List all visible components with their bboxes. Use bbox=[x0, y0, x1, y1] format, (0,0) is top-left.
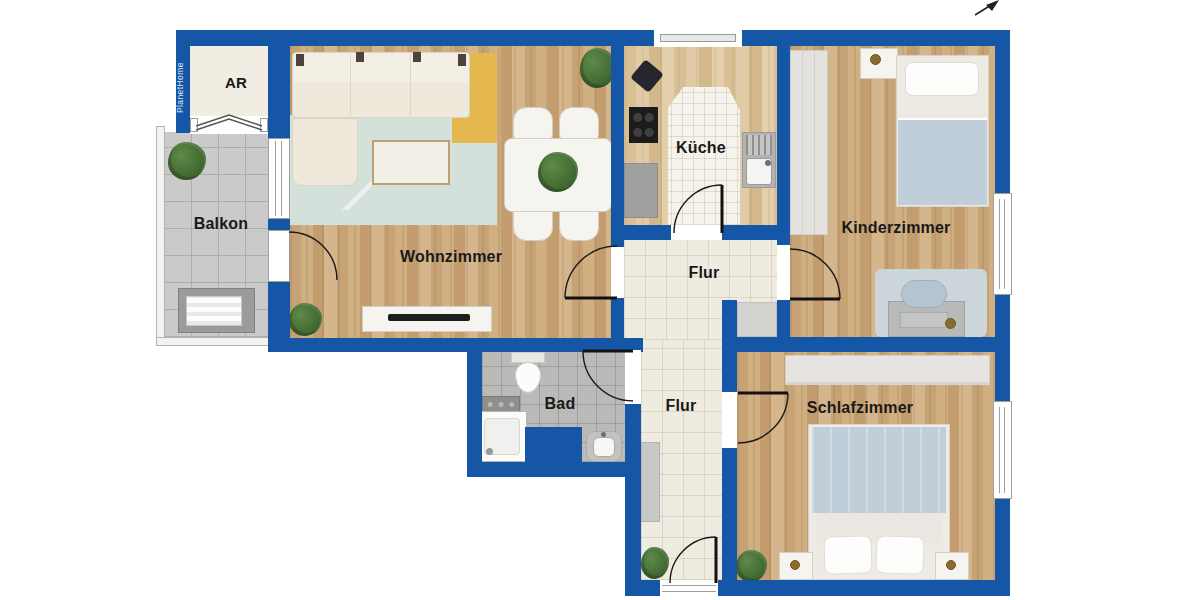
kids-bed-pillow bbox=[905, 62, 979, 96]
kitchen-door-opening bbox=[671, 225, 722, 240]
bath-faucet bbox=[601, 432, 606, 437]
room-label-wohnzimmer: Wohnzimmer bbox=[400, 248, 502, 266]
bed-pillow-left bbox=[823, 535, 872, 575]
living-hall-door-opening bbox=[611, 247, 624, 298]
kids-bed-blanket bbox=[898, 118, 987, 205]
sofa-chaise bbox=[292, 118, 358, 186]
room-label-balkon: Balkon bbox=[194, 215, 249, 233]
watermark-brand: PlanetHome bbox=[175, 50, 190, 126]
kids-desk-chair bbox=[901, 280, 947, 308]
wall-bath-jog bbox=[525, 427, 582, 463]
kids-desk-lamp bbox=[945, 318, 956, 329]
tv bbox=[388, 314, 470, 321]
balcony-window-glass bbox=[275, 141, 276, 216]
north-arrow-icon bbox=[975, 0, 999, 15]
ar-folding-door-post-right bbox=[260, 118, 268, 132]
kids-wardrobe bbox=[790, 50, 828, 235]
room-label-kueche: Küche bbox=[676, 139, 726, 157]
sofa-cushion-line-1 bbox=[350, 54, 351, 116]
bath-door-opening bbox=[625, 350, 641, 404]
wall-living-kitchen bbox=[611, 46, 624, 352]
wall-kids-bedroom bbox=[722, 337, 1010, 352]
kids-window-glass bbox=[999, 199, 1000, 289]
dish-rack bbox=[746, 135, 772, 155]
entry-door-opening bbox=[660, 580, 718, 596]
sofa-foot-1 bbox=[296, 54, 304, 66]
kitchen-window-glass bbox=[660, 34, 736, 42]
wall-kitchen-kids bbox=[777, 46, 790, 240]
wall-living-bottom bbox=[268, 338, 643, 352]
sofa-foot-2 bbox=[356, 52, 364, 62]
wall-top bbox=[176, 30, 1010, 46]
bedroom-door-opening bbox=[722, 392, 737, 448]
hall-niche-closet bbox=[737, 302, 777, 337]
kids-lamp bbox=[870, 54, 881, 65]
cooktop-burners bbox=[632, 110, 655, 140]
kids-door-opening bbox=[777, 245, 790, 300]
room-label-flur-oben: Flur bbox=[688, 264, 719, 282]
bedroom-lamp-left bbox=[790, 560, 800, 570]
kids-wardrobe-lines bbox=[802, 51, 803, 234]
kitchen-counter bbox=[624, 163, 658, 218]
kids-window bbox=[993, 193, 1012, 295]
room-label-ar: AR bbox=[225, 74, 247, 91]
sofa bbox=[292, 52, 470, 118]
bath-sink-basin bbox=[593, 437, 615, 457]
room-label-bad: Bad bbox=[545, 395, 576, 413]
room-label-schlafzimmer: Schlafzimmer bbox=[807, 399, 913, 417]
wall-bath-bottom bbox=[467, 462, 641, 477]
room-label-kinderzimmer: Kinderzimmer bbox=[841, 219, 950, 237]
entry-door-sill bbox=[662, 585, 716, 586]
floor-plan: AR Balkon Wohnzimmer Küche Kinderzimmer … bbox=[0, 0, 1200, 600]
ar-folding-door-strip bbox=[190, 116, 268, 134]
wall-bath-left bbox=[467, 338, 482, 477]
bedroom-wardrobe bbox=[785, 355, 990, 385]
balcony-door-opening bbox=[268, 230, 290, 282]
bedroom-window-glass bbox=[999, 407, 1000, 493]
shower-drain bbox=[486, 448, 493, 455]
double-bed-blanket bbox=[812, 427, 946, 513]
sofa-foot-3 bbox=[413, 52, 421, 62]
hall-cabinet bbox=[641, 442, 660, 522]
ar-folding-door-post-left bbox=[190, 118, 198, 132]
balcony-bench-cushion bbox=[186, 296, 242, 326]
kitchen-faucet bbox=[765, 160, 771, 166]
bed-pillow-right bbox=[875, 535, 924, 575]
coffee-table bbox=[372, 140, 450, 185]
balcony-railing-left bbox=[156, 126, 165, 345]
balcony-window bbox=[268, 138, 290, 219]
sofa-cushion-line-2 bbox=[410, 54, 411, 116]
sofa-foot-4 bbox=[458, 54, 466, 66]
bedroom-lamp-right bbox=[946, 560, 956, 570]
wall-right bbox=[995, 30, 1010, 595]
bedroom-window bbox=[993, 401, 1012, 499]
room-label-flur-unten: Flur bbox=[665, 397, 696, 415]
kids-desk-drawer bbox=[900, 312, 948, 328]
